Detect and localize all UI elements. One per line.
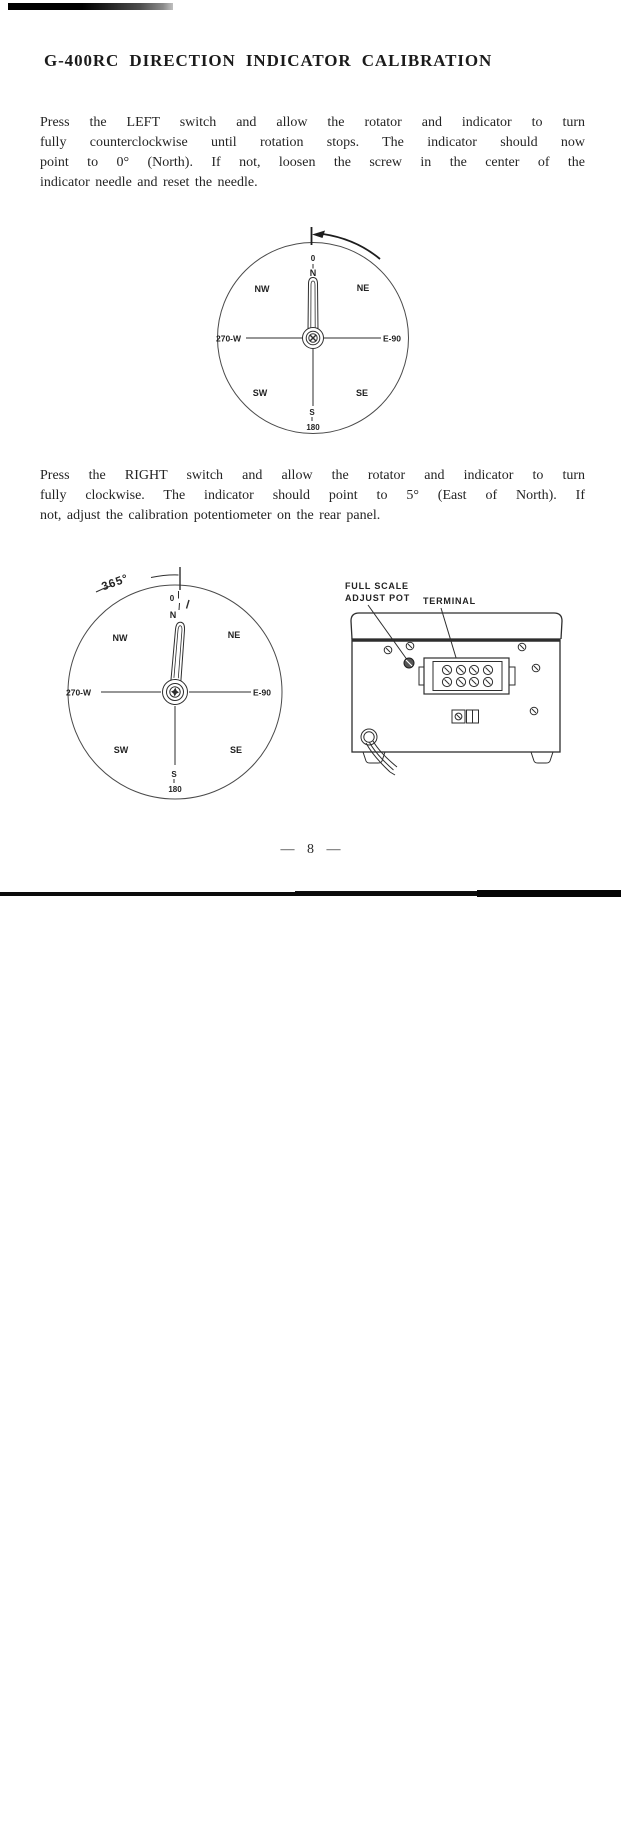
label-se: SE bbox=[356, 388, 368, 398]
full-scale-adjust-pot bbox=[404, 658, 414, 668]
terminal-leader-line bbox=[441, 608, 457, 661]
scan-artifact-separator bbox=[477, 890, 621, 897]
indicator-needle bbox=[162, 621, 194, 705]
label-adjust-pot: ADJUST POT bbox=[345, 593, 410, 603]
angle-arc-right bbox=[151, 575, 179, 578]
paragraph-line: fully counterclockwise until rotation st… bbox=[40, 133, 585, 153]
label-n: N bbox=[310, 268, 317, 278]
label-sw: SW bbox=[253, 388, 268, 398]
compass-diagram-365: 365° 0 N NW NE 270-W E-90 SW SE S 180 bbox=[55, 560, 295, 810]
label-nw: NW bbox=[255, 284, 270, 294]
label-180: 180 bbox=[168, 785, 182, 794]
foot-left bbox=[363, 752, 385, 763]
five-deg-mark bbox=[187, 600, 190, 609]
label-ne: NE bbox=[228, 630, 241, 640]
paragraph-line: Press the RIGHT switch and allow the rot… bbox=[40, 466, 585, 486]
label-180: 180 bbox=[306, 423, 320, 432]
accessory-connector bbox=[452, 710, 479, 723]
overshoot-angle-annotation: 365° bbox=[96, 567, 180, 593]
label-se: SE bbox=[230, 745, 242, 755]
label-nw: NW bbox=[113, 633, 128, 643]
rear-face bbox=[352, 639, 560, 752]
paragraph-line: not, adjust the calibration potentiomete… bbox=[40, 506, 585, 526]
needle-outline bbox=[308, 278, 318, 332]
zero-ref-dash bbox=[179, 603, 180, 610]
foot-right bbox=[531, 752, 553, 763]
paragraph-line: point to 0° (North). If not, loosen the … bbox=[40, 153, 585, 173]
label-e90: E-90 bbox=[253, 688, 271, 698]
compass-diagram-north: 0 N NW NE 270-W E-90 SW SE S 180 bbox=[190, 215, 440, 445]
label-270w: 270-W bbox=[216, 334, 242, 344]
label-sw: SW bbox=[114, 745, 129, 755]
rotation-arc bbox=[323, 234, 380, 259]
label-ne: NE bbox=[357, 283, 370, 293]
indicator-needle bbox=[303, 278, 324, 349]
label-365deg: 365° bbox=[100, 573, 130, 594]
paragraph-line: indicator needle and reset the needle. bbox=[40, 173, 585, 193]
page-number: — 8 — bbox=[0, 842, 621, 858]
rear-panel-diagram: FULL SCALE ADJUST POT TERMINAL bbox=[335, 575, 575, 790]
label-s: S bbox=[309, 408, 315, 417]
page-title: G-400RC DIRECTION INDICATOR CALIBRATION bbox=[44, 51, 492, 71]
paragraph-left-switch: Press the LEFT switch and allow the rota… bbox=[40, 113, 585, 193]
paragraph-right-switch: Press the RIGHT switch and allow the rot… bbox=[40, 466, 585, 526]
paragraph-line: fully clockwise. The indicator should po… bbox=[40, 486, 585, 506]
label-0: 0 bbox=[311, 254, 316, 263]
label-n: N bbox=[170, 610, 177, 620]
label-s: S bbox=[171, 770, 177, 779]
terminal-block bbox=[419, 658, 515, 694]
label-270w: 270-W bbox=[66, 688, 92, 698]
label-0: 0 bbox=[170, 594, 175, 603]
label-terminal: TERMINAL bbox=[423, 596, 476, 606]
paragraph-line: Press the LEFT switch and allow the rota… bbox=[40, 113, 585, 133]
label-e90: E-90 bbox=[383, 334, 401, 344]
terminal-outer bbox=[424, 658, 509, 694]
label-full-scale: FULL SCALE bbox=[345, 581, 409, 591]
arrowhead-left-icon bbox=[312, 231, 325, 239]
scan-artifact-top-bar bbox=[8, 3, 173, 10]
manual-page: G-400RC DIRECTION INDICATOR CALIBRATION … bbox=[0, 0, 621, 1836]
